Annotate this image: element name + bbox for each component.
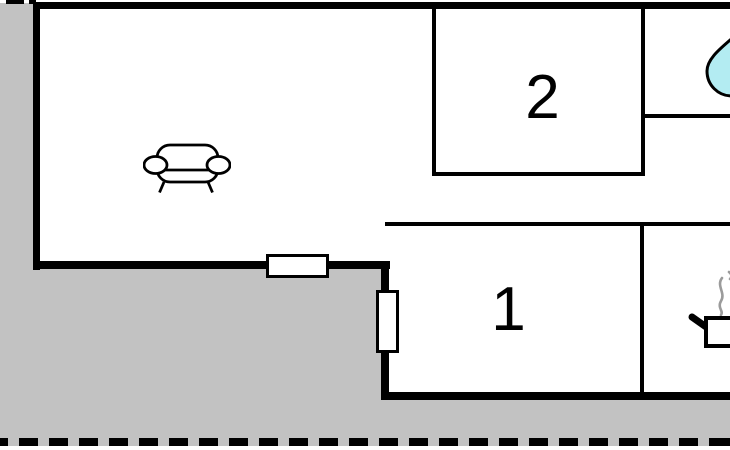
- bedroom-1-label: 1: [383, 228, 634, 392]
- floor-plan: 2 1: [0, 0, 730, 450]
- water-drop-icon: [701, 26, 730, 98]
- sofa-icon: [143, 142, 231, 194]
- wall-living-south: [33, 261, 390, 269]
- bedroom-2-label: 2: [440, 16, 645, 179]
- wall-south: [381, 392, 730, 400]
- cooking-pot-icon: [685, 265, 730, 355]
- window-south: [266, 254, 329, 278]
- wall-bathroom-south: [641, 114, 730, 118]
- wall-west: [33, 2, 40, 270]
- property-boundary-top-dash: [29, 0, 36, 4]
- property-boundary-line: [0, 438, 730, 446]
- property-boundary-top-dash: [6, 0, 24, 4]
- wall-north: [33, 2, 730, 9]
- wall-bedroom1-kitchen-divider: [640, 222, 644, 392]
- wall-bedroom1-north: [385, 222, 730, 226]
- wall-bedroom2-west: [432, 9, 436, 176]
